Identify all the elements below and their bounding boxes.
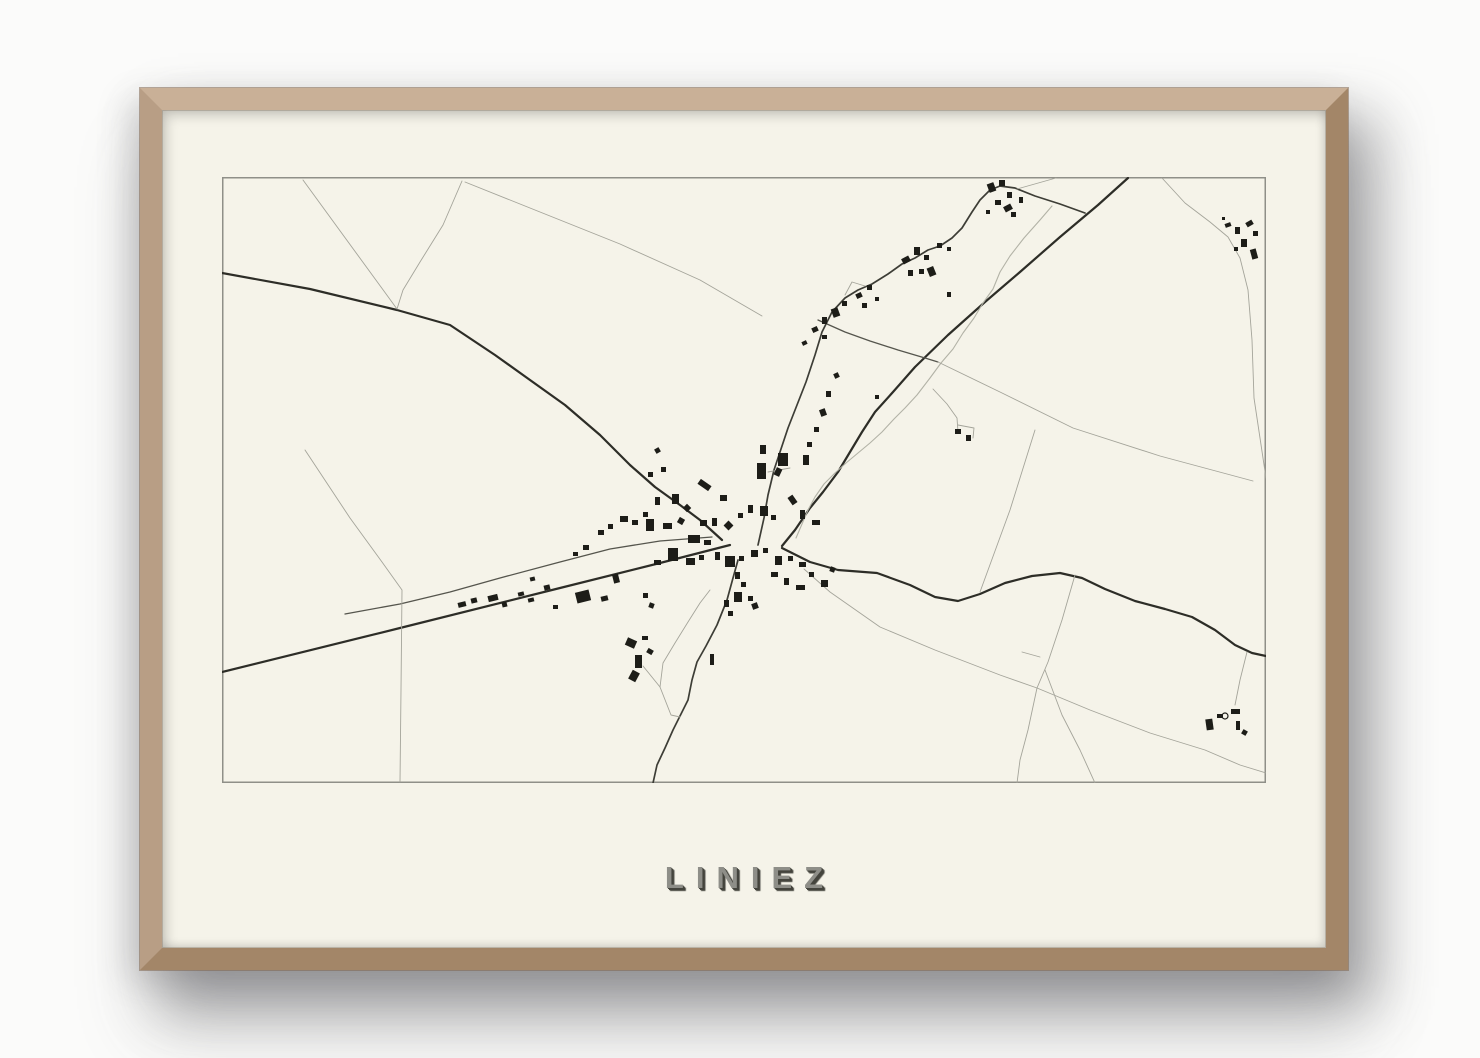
- building: [1234, 247, 1238, 251]
- building: [625, 637, 637, 648]
- road-field-line-8: [1017, 575, 1075, 783]
- building: [1019, 197, 1023, 203]
- road-s-road: [653, 560, 738, 783]
- building: [751, 550, 758, 557]
- building: [654, 447, 661, 454]
- building: [819, 408, 827, 417]
- building: [784, 578, 789, 585]
- building: [728, 611, 733, 616]
- building: [788, 556, 793, 561]
- building: [757, 463, 766, 479]
- building: [1222, 217, 1225, 220]
- building: [583, 545, 589, 550]
- building: [612, 573, 620, 583]
- building: [995, 200, 1001, 205]
- building: [831, 307, 841, 318]
- building: [699, 555, 704, 560]
- building: [700, 520, 707, 526]
- building: [724, 600, 729, 607]
- building: [661, 467, 666, 472]
- building: [1236, 721, 1240, 730]
- building: [875, 395, 879, 399]
- building: [628, 670, 640, 683]
- building: [811, 326, 819, 333]
- building: [704, 540, 711, 545]
- building: [668, 548, 678, 561]
- building: [663, 523, 672, 529]
- building: [748, 505, 753, 513]
- building: [937, 243, 942, 248]
- building: [760, 506, 768, 516]
- building: [741, 582, 746, 587]
- building: [739, 556, 744, 561]
- page-background: LINIEZ: [0, 0, 1480, 1058]
- road-s-branch-a: [643, 666, 660, 687]
- building: [862, 303, 867, 308]
- building: [487, 594, 498, 602]
- building: [677, 517, 685, 525]
- building: [725, 556, 735, 567]
- road-main-diagonal: [782, 178, 1128, 546]
- building: [803, 455, 809, 465]
- building: [553, 605, 558, 609]
- building: [646, 519, 654, 531]
- building: [867, 285, 872, 290]
- building: [643, 512, 648, 517]
- building: [1007, 192, 1012, 198]
- building: [914, 247, 920, 255]
- road-hamlet-spur: [1235, 652, 1247, 705]
- building: [763, 548, 768, 553]
- road-s-branch-b: [660, 687, 680, 717]
- building: [715, 552, 720, 560]
- building: [632, 520, 638, 525]
- building: [822, 335, 827, 339]
- building: [528, 597, 535, 602]
- building: [600, 595, 608, 602]
- building: [809, 572, 814, 577]
- building: [608, 524, 613, 529]
- road-se-diagonal: [804, 569, 1266, 773]
- building: [771, 572, 778, 577]
- building: [530, 576, 536, 581]
- building: [646, 648, 654, 655]
- building: [833, 372, 840, 379]
- road-w-road: [345, 537, 712, 614]
- building: [796, 585, 805, 590]
- road-e-road: [782, 548, 1266, 656]
- picture-frame: LINIEZ: [140, 88, 1348, 970]
- building: [738, 513, 743, 518]
- road-field-tick: [1022, 652, 1040, 657]
- map-title: LINIEZ: [162, 860, 1326, 896]
- building: [575, 589, 591, 603]
- building: [822, 317, 827, 324]
- building: [518, 591, 525, 596]
- building: [635, 655, 642, 668]
- building: [826, 391, 831, 397]
- building: [688, 535, 700, 543]
- building: [927, 266, 937, 277]
- town-map: [222, 177, 1266, 783]
- building: [672, 494, 679, 504]
- building: [821, 580, 828, 587]
- building: [1250, 248, 1258, 259]
- building: [573, 552, 578, 556]
- building: [686, 558, 695, 565]
- road-field-line-2: [397, 181, 462, 309]
- building: [748, 596, 753, 601]
- building: [720, 495, 727, 501]
- road-s-parallel: [660, 590, 710, 687]
- building: [966, 435, 971, 441]
- building: [1245, 220, 1254, 228]
- building: [683, 504, 691, 512]
- building: [855, 292, 863, 299]
- building: [842, 301, 847, 306]
- building: [724, 521, 734, 531]
- building: [654, 560, 661, 565]
- map-border: [223, 178, 1266, 783]
- building: [799, 562, 806, 567]
- building: [800, 510, 805, 519]
- building: [814, 427, 819, 432]
- building: [807, 442, 812, 447]
- building: [986, 210, 990, 214]
- building: [458, 601, 467, 608]
- building: [924, 255, 929, 260]
- building: [1235, 227, 1240, 234]
- building: [751, 602, 759, 610]
- building: [919, 269, 924, 274]
- building: [712, 518, 717, 526]
- building: [710, 654, 714, 665]
- building: [697, 479, 711, 491]
- building: [908, 270, 913, 276]
- building: [620, 516, 628, 522]
- building: [760, 445, 766, 454]
- road-field-line-3: [465, 182, 762, 316]
- building: [947, 292, 951, 297]
- road-sw-road: [222, 545, 730, 672]
- building: [771, 515, 776, 520]
- building: [1253, 231, 1258, 236]
- building: [735, 572, 740, 579]
- building: [787, 495, 797, 506]
- building: [775, 556, 782, 565]
- poster-mat: LINIEZ: [162, 110, 1326, 948]
- building: [1205, 719, 1213, 731]
- road-field-line-7: [980, 430, 1035, 592]
- building: [947, 247, 951, 251]
- road-field-line-4: [1017, 178, 1056, 189]
- road-village-street: [758, 186, 1085, 545]
- building: [642, 636, 648, 640]
- building: [734, 592, 742, 602]
- road-field-line-6: [938, 362, 1253, 481]
- building: [655, 497, 660, 505]
- road-nw-road: [222, 273, 722, 540]
- building: [875, 297, 879, 301]
- building: [648, 472, 653, 477]
- building: [1003, 203, 1013, 212]
- building: [955, 429, 961, 434]
- building: [1231, 709, 1240, 714]
- building: [778, 453, 788, 466]
- building: [801, 340, 807, 346]
- building: [1241, 239, 1247, 247]
- road-field-line-10: [305, 450, 402, 782]
- building: [1011, 212, 1016, 217]
- building: [1241, 729, 1248, 736]
- building: [643, 593, 648, 598]
- building: [470, 597, 477, 603]
- building: [999, 180, 1005, 186]
- building: [598, 530, 604, 535]
- road-farm-spur: [933, 389, 958, 432]
- building: [648, 602, 654, 608]
- road-field-line-9: [1045, 670, 1095, 783]
- building: [1224, 222, 1231, 228]
- road-se-lane: [818, 320, 938, 362]
- building: [812, 520, 820, 525]
